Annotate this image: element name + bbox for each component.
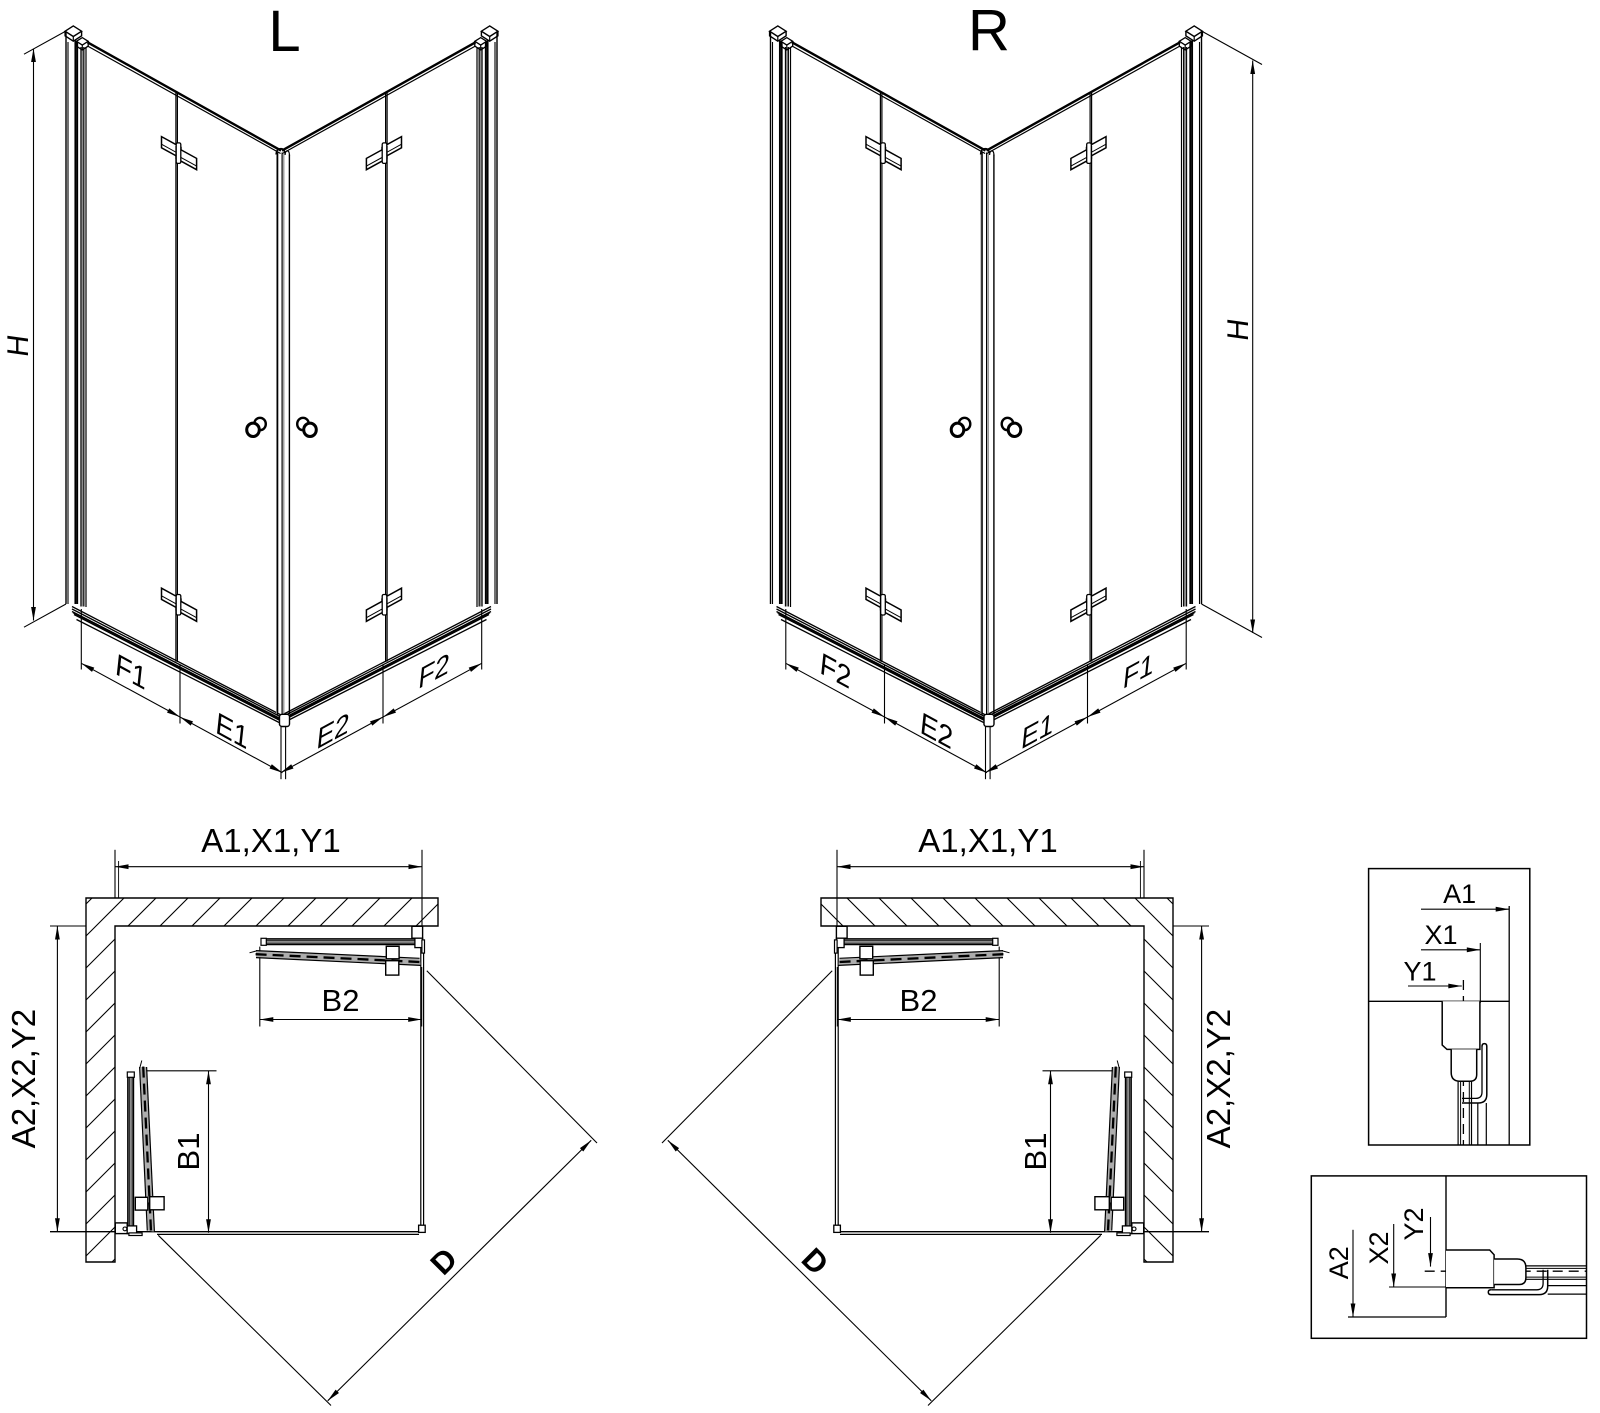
svg-text:E2: E2 bbox=[919, 706, 955, 756]
svg-text:X1: X1 bbox=[1424, 920, 1457, 950]
svg-text:A1,X1,Y1: A1,X1,Y1 bbox=[201, 822, 340, 859]
svg-text:A1: A1 bbox=[1443, 879, 1476, 909]
svg-text:Y2: Y2 bbox=[1399, 1207, 1429, 1240]
svg-text:D: D bbox=[424, 1241, 465, 1282]
svg-text:E1: E1 bbox=[1020, 706, 1056, 756]
svg-text:Y1: Y1 bbox=[1403, 957, 1436, 987]
svg-text:H: H bbox=[1222, 317, 1255, 343]
svg-text:B1: B1 bbox=[171, 1133, 206, 1171]
svg-text:H: H bbox=[2, 333, 35, 359]
svg-text:E2: E2 bbox=[315, 706, 351, 756]
svg-text:B2: B2 bbox=[322, 983, 360, 1018]
svg-text:A2,X2,Y2: A2,X2,Y2 bbox=[1200, 1009, 1237, 1148]
svg-text:B1: B1 bbox=[1018, 1133, 1053, 1171]
svg-text:E1: E1 bbox=[214, 706, 250, 756]
svg-text:A1,X1,Y1: A1,X1,Y1 bbox=[918, 822, 1057, 859]
svg-text:R: R bbox=[968, 0, 1010, 63]
svg-text:F2: F2 bbox=[818, 647, 852, 697]
svg-text:B2: B2 bbox=[900, 983, 938, 1018]
svg-text:A2: A2 bbox=[1324, 1246, 1354, 1279]
svg-text:A2,X2,Y2: A2,X2,Y2 bbox=[5, 1009, 42, 1148]
svg-text:X2: X2 bbox=[1364, 1231, 1394, 1264]
svg-text:L: L bbox=[268, 0, 300, 64]
svg-text:F1: F1 bbox=[114, 648, 148, 698]
svg-text:D: D bbox=[795, 1241, 836, 1282]
